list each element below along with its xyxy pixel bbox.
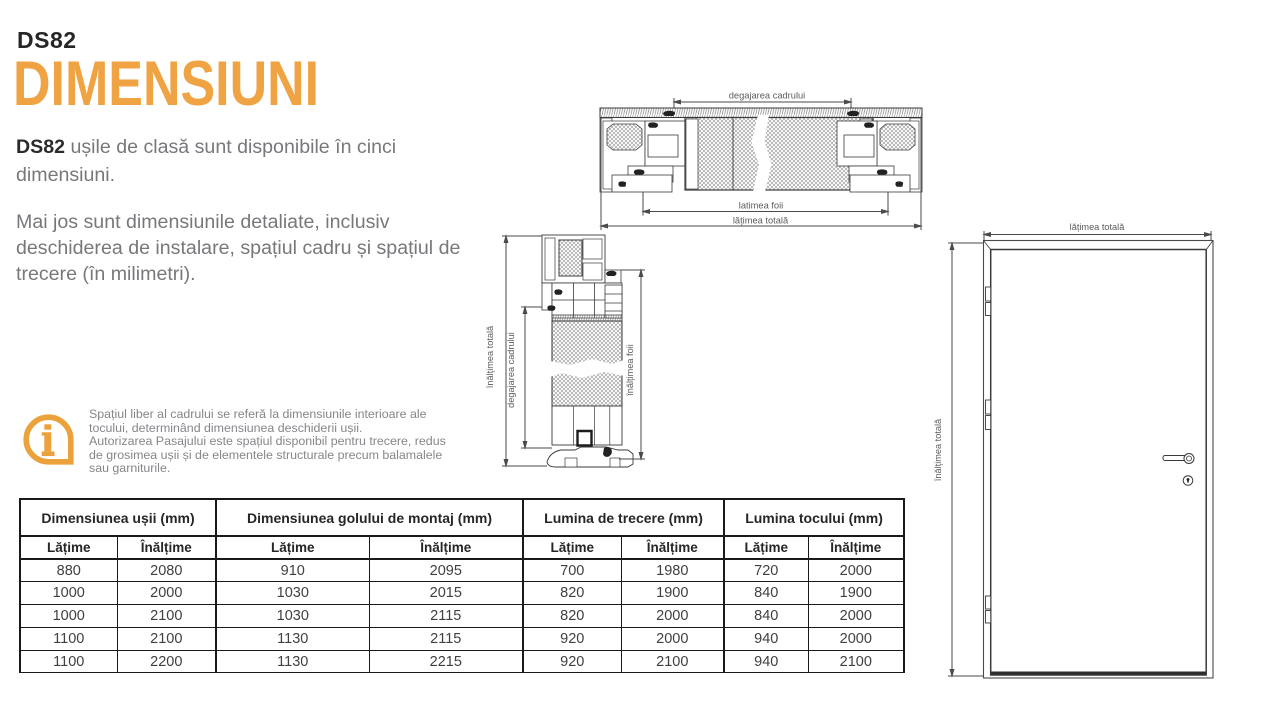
svg-text:lățimea totală: lățimea totală [733, 216, 789, 226]
svg-text:înălțimea foii: înălțimea foii [625, 344, 635, 397]
svg-text:degajarea cadrului: degajarea cadrului [506, 332, 516, 408]
svg-text:înălțimea totală: înălțimea totală [485, 325, 495, 389]
svg-text:lățimea totală: lățimea totală [1070, 222, 1126, 232]
svg-text:degajarea cadrului: degajarea cadrului [729, 91, 806, 101]
svg-text:înălțimea totală: înălțimea totală [933, 418, 943, 482]
svg-text:latimea foii: latimea foii [739, 201, 783, 211]
